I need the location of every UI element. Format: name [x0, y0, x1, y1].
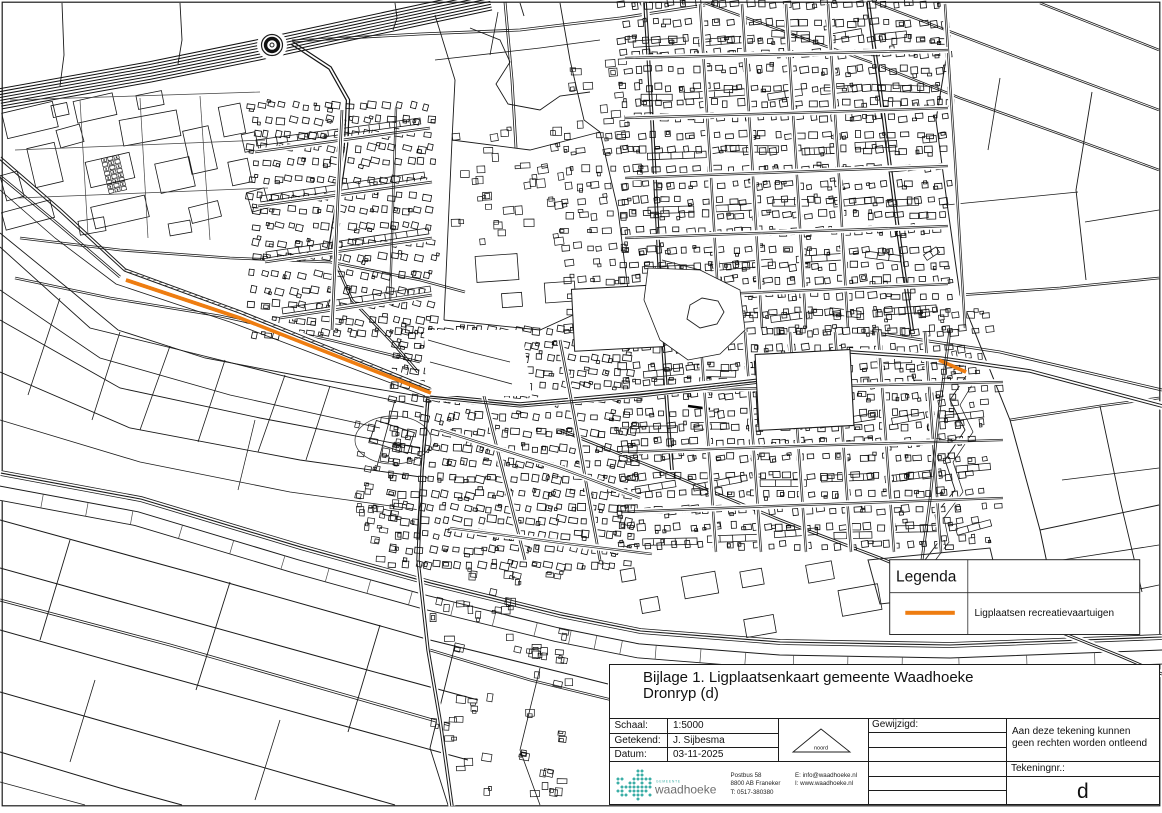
svg-text:Legenda: Legenda	[896, 569, 957, 586]
svg-text:noord: noord	[814, 745, 828, 751]
svg-text:waadhoeke: waadhoeke	[654, 782, 717, 796]
svg-text:Ligplaatsen recreatievaartuige: Ligplaatsen recreatievaartuigen	[975, 608, 1115, 619]
